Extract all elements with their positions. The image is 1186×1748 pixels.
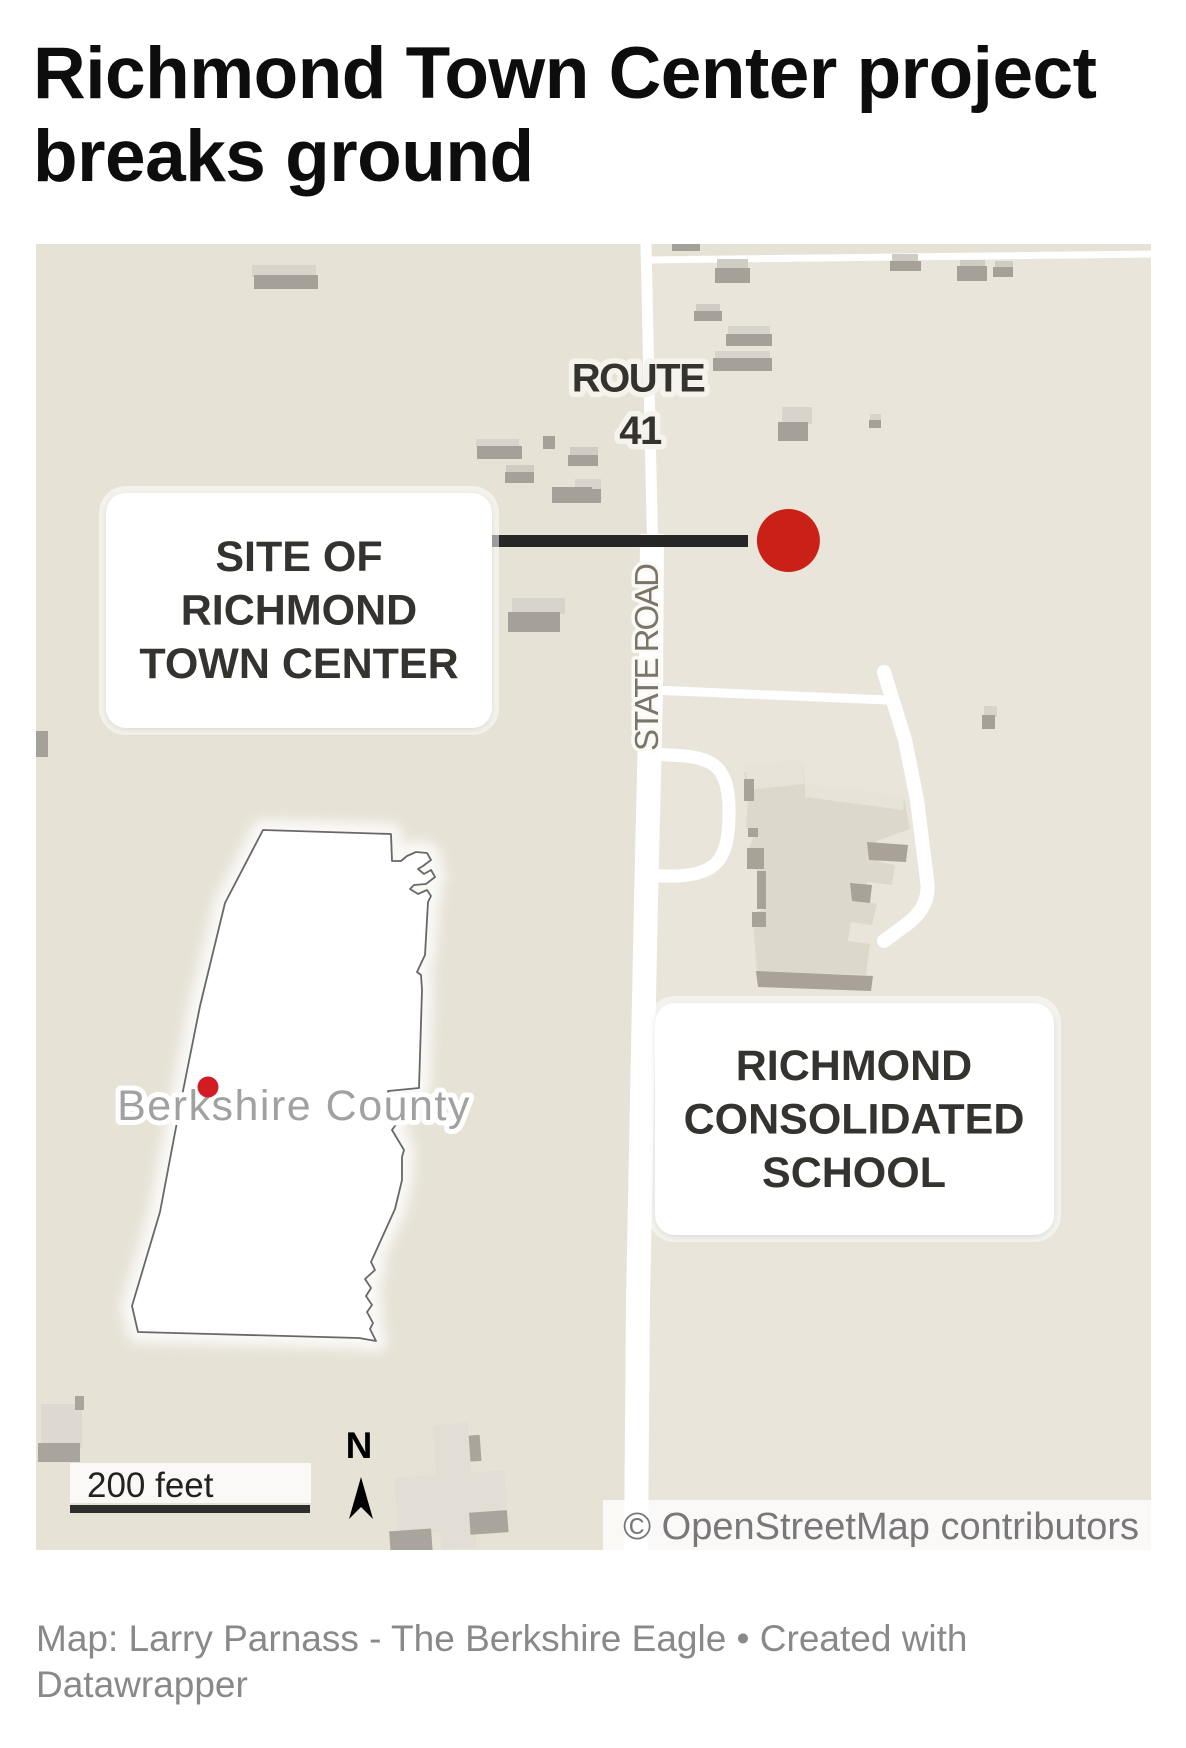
svg-text:STATE ROAD: STATE ROAD <box>628 564 665 751</box>
svg-text:SCHOOL: SCHOOL <box>762 1149 946 1197</box>
svg-text:RICHMOND: RICHMOND <box>181 587 417 635</box>
svg-text:41: 41 <box>619 409 662 453</box>
svg-text:SITE OF: SITE OF <box>215 533 382 581</box>
svg-text:TOWN CENTER: TOWN CENTER <box>139 640 458 688</box>
svg-text:CONSOLIDATED: CONSOLIDATED <box>684 1096 1025 1144</box>
svg-text:© OpenStreetMap contributors: © OpenStreetMap contributors <box>623 1506 1139 1548</box>
svg-text:RICHMOND: RICHMOND <box>736 1042 972 1090</box>
svg-text:200 feet: 200 feet <box>87 1466 214 1505</box>
svg-text:Berkshire County: Berkshire County <box>117 1082 471 1130</box>
svg-text:N: N <box>346 1425 373 1466</box>
svg-text:ROUTE: ROUTE <box>572 357 705 401</box>
